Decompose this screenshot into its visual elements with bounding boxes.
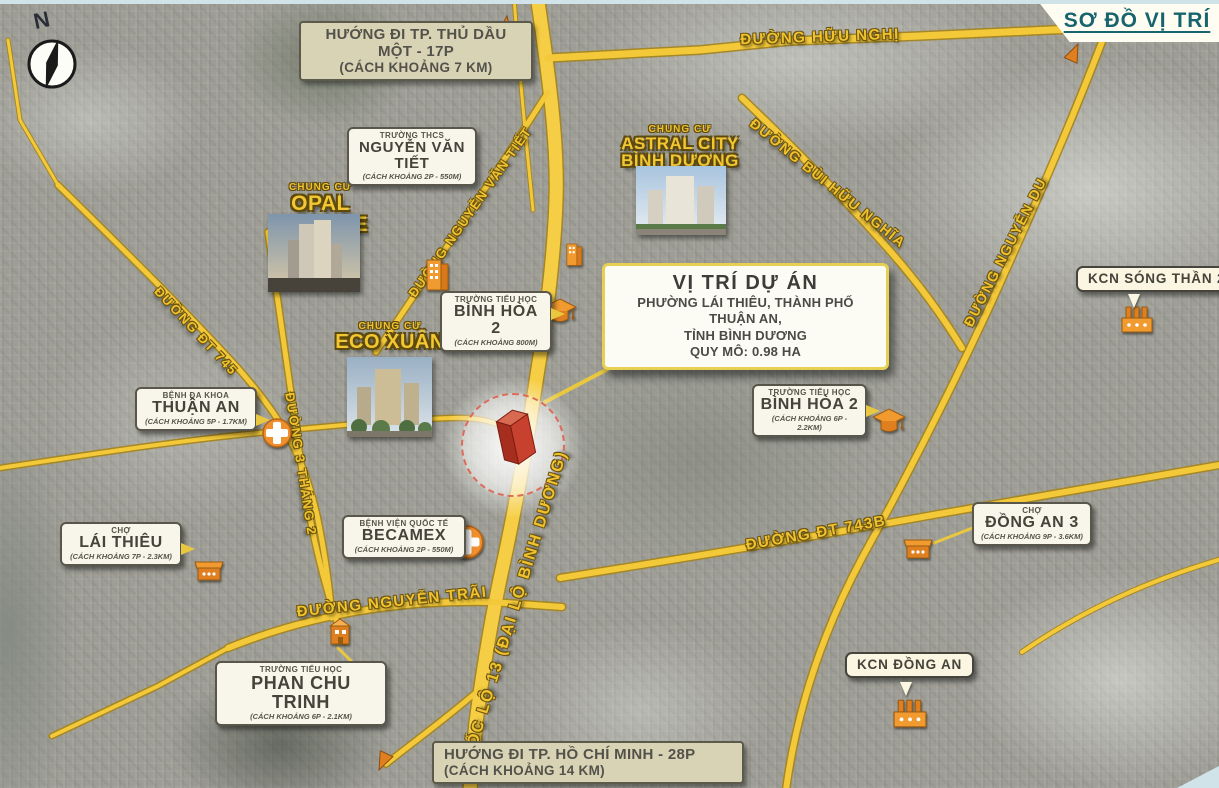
poi-distance: (CÁCH KHOẢNG 7P - 2.3KM) xyxy=(68,552,174,561)
project-info-box: VỊ TRÍ DỰ ÁN PHƯỜNG LÁI THIÊU, THÀNH PHỐ… xyxy=(602,263,889,370)
market-icon xyxy=(902,530,934,560)
building-icon xyxy=(423,256,451,292)
poi-box-phan-chu-trinh: TRƯỜNG TIỂU HỌC PHAN CHU TRINH (CÁCH KHO… xyxy=(215,661,387,726)
astral-city-photo xyxy=(636,166,726,235)
page-edge-strip xyxy=(0,0,1219,4)
pointer-binh-hoa-2-west xyxy=(551,308,565,320)
direction-line2: (CÁCH KHOẢNG 14 KM) xyxy=(444,763,732,778)
apartment-name: ECO XUÂN xyxy=(330,332,450,352)
poi-name: LÁI THIÊU xyxy=(68,535,174,552)
kcn-song-than-2-pointer xyxy=(1128,294,1140,308)
apartment-label-eco-xuan: CHUNG CƯ ECO XUÂN xyxy=(330,321,450,352)
project-scale: QUY MÔ: 0.98 HA xyxy=(613,344,878,360)
poi-distance: (CÁCH KHOẢNG 800M) xyxy=(448,338,544,347)
poi-box-dong-an-3: CHỢ ĐỒNG AN 3 (CÁCH KHOẢNG 9P - 3.6KM) xyxy=(972,502,1092,546)
poi-distance: (CÁCH KHOẢNG 5P - 1.7KM) xyxy=(143,417,249,426)
apartment-label-astral-city: CHUNG CƯ ASTRAL CITY BÌNH DƯƠNG xyxy=(616,124,744,169)
eco-xuan-photo xyxy=(347,357,432,437)
satellite-map: N SƠ ĐỒ VỊ TRÍ HƯỚNG ĐI TP. THỦ DẦU MỘT … xyxy=(0,0,1219,788)
pointer-lai-thieu xyxy=(181,543,195,555)
arrow-east-icon xyxy=(1064,41,1084,63)
compass-icon: N xyxy=(12,4,98,108)
poi-distance: (CÁCH KHOẢNG 2P - 550M) xyxy=(355,172,469,181)
factory-icon xyxy=(891,696,929,730)
poi-distance: (CÁCH KHOẢNG 6P - 2.1KM) xyxy=(223,712,379,721)
direction-line1: HƯỚNG ĐI TP. HỒ CHÍ MINH - 28P xyxy=(444,746,732,763)
kcn-song-than-2-bubble: KCN SÓNG THẦN 2 xyxy=(1076,266,1219,292)
direction-line1: HƯỚNG ĐI TP. THỦ DẦU MỘT - 17P xyxy=(311,26,521,60)
page-title: SƠ ĐỒ VỊ TRÍ xyxy=(1046,9,1211,33)
kcn-dong-an-pointer xyxy=(900,682,912,696)
kcn-dong-an-bubble: KCN ĐỒNG AN xyxy=(845,652,974,678)
poi-name: BÌNH HÒA 2 xyxy=(760,397,859,414)
school-icon xyxy=(326,616,354,648)
poi-distance: (CÁCH KHOẢNG 9P - 3.6KM) xyxy=(980,532,1084,541)
poi-name: BECAMEX xyxy=(350,528,458,545)
pointer-binh-hoa-2-east xyxy=(866,405,880,417)
building-icon xyxy=(564,241,584,267)
direction-box-thu-dau-mot: HƯỚNG ĐI TP. THỦ DẦU MỘT - 17P (CÁCH KHO… xyxy=(299,21,533,81)
compass-north-letter: N xyxy=(31,6,52,34)
opal-skyline-photo xyxy=(268,214,360,292)
project-address-line1: PHƯỜNG LÁI THIÊU, THÀNH PHỐ THUẬN AN, xyxy=(613,295,878,328)
poi-name: BÌNH HÒA 2 xyxy=(448,304,544,338)
poi-box-binh-hoa-2-east: TRƯỜNG TIỂU HỌC BÌNH HÒA 2 (CÁCH KHOẢNG … xyxy=(752,384,867,437)
poi-name: PHAN CHU TRINH xyxy=(223,674,379,712)
poi-box-binh-hoa-2-west: TRƯỜNG TIỂU HỌC BÌNH HÒA 2 (CÁCH KHOẢNG … xyxy=(440,291,552,352)
project-address-line2: TỈNH BÌNH DƯƠNG xyxy=(613,328,878,344)
poi-box-becamex: BỆNH VIỆN QUỐC TẾ BECAMEX (CÁCH KHOẢNG 2… xyxy=(342,515,466,559)
apartment-name: ASTRAL CITY xyxy=(616,135,744,152)
pointer-thuan-an xyxy=(256,414,270,426)
direction-box-ho-chi-minh: HƯỚNG ĐI TP. HỒ CHÍ MINH - 28P (CÁCH KHO… xyxy=(432,741,744,784)
project-title: VỊ TRÍ DỰ ÁN xyxy=(613,272,878,295)
poi-box-thuan-an: BỆNH ĐA KHOA THUẬN AN (CÁCH KHOẢNG 5P - … xyxy=(135,387,257,431)
poi-box-lai-thieu: CHỢ LÁI THIÊU (CÁCH KHOẢNG 7P - 2.3KM) xyxy=(60,522,182,566)
poi-name: ĐỒNG AN 3 xyxy=(980,515,1084,532)
direction-line2: (CÁCH KHOẢNG 7 KM) xyxy=(311,60,521,75)
poi-box-nguyen-van-tiet: TRƯỜNG THCS NGUYỄN VĂN TIẾT (CÁCH KHOẢNG… xyxy=(347,127,477,186)
poi-name: NGUYỄN VĂN TIẾT xyxy=(355,140,469,172)
poi-name: THUẬN AN xyxy=(143,400,249,417)
poi-distance: (CÁCH KHOẢNG 6P - 2.2KM) xyxy=(760,414,859,432)
market-icon xyxy=(193,552,225,582)
poi-distance: (CÁCH KHOẢNG 2P - 550M) xyxy=(350,545,458,554)
